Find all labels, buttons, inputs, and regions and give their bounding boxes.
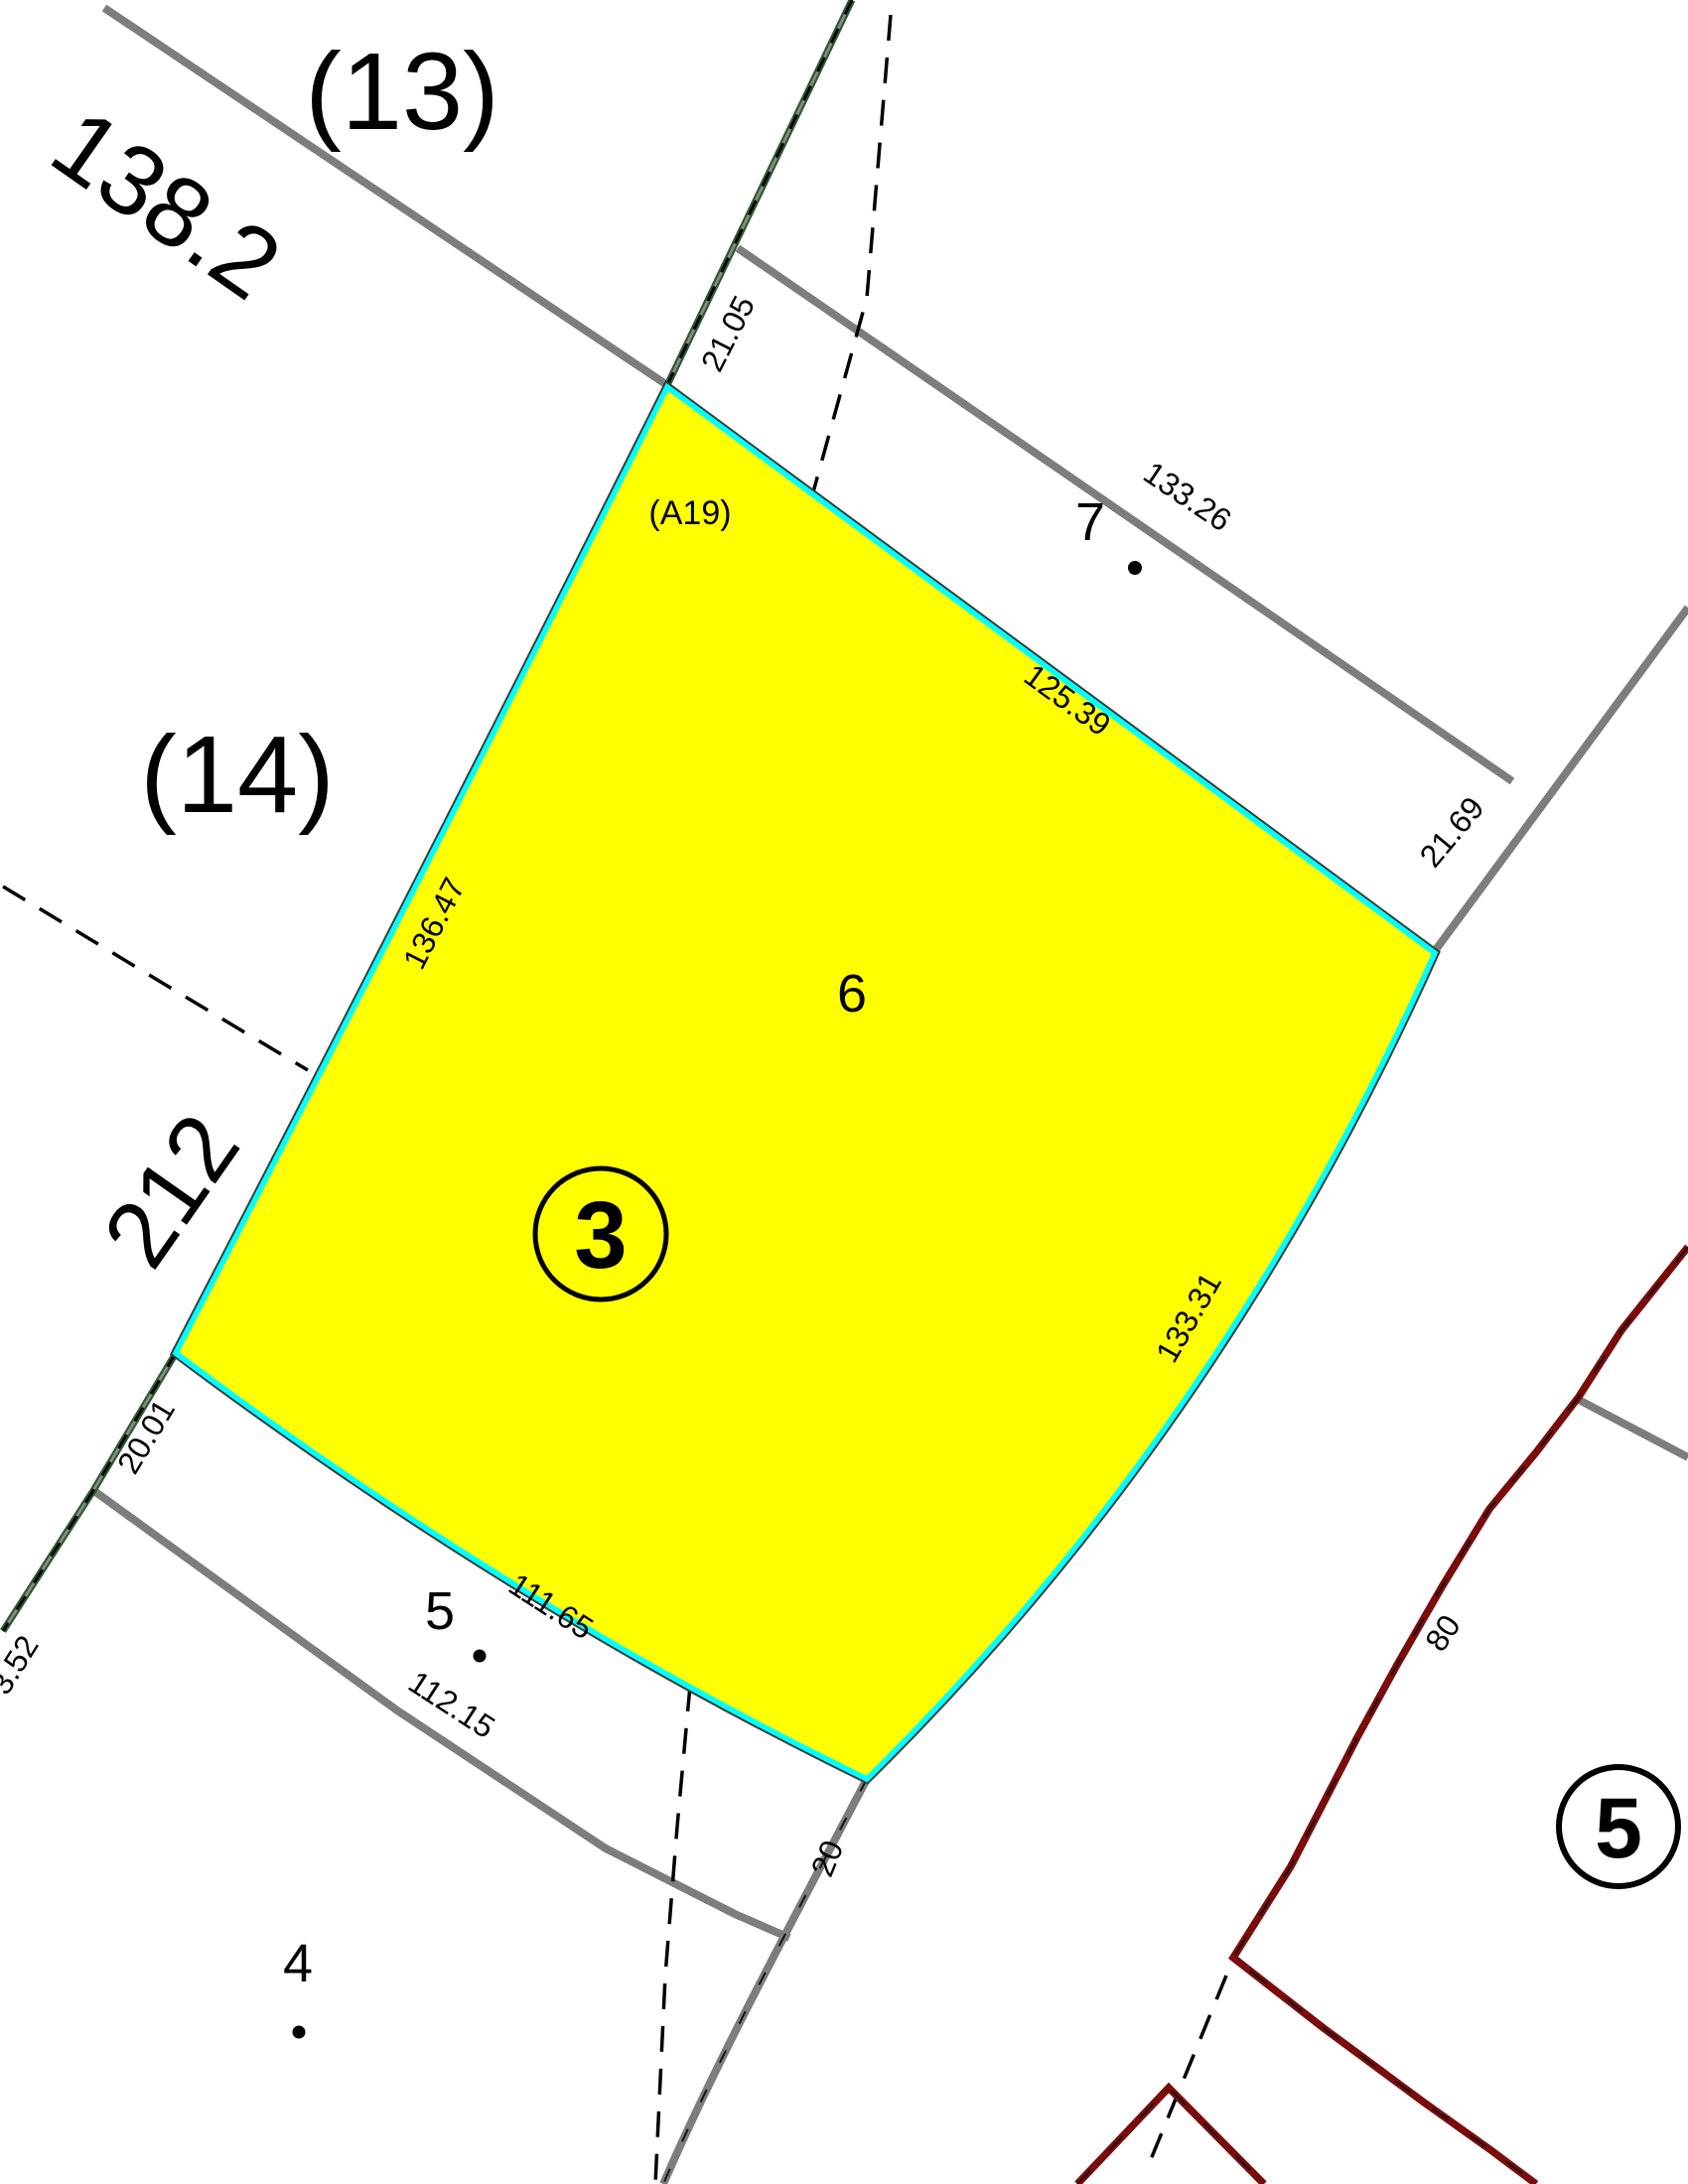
- dim-112-15-label: 112.15: [402, 1664, 501, 1745]
- road-138-2-label: 138.2: [33, 87, 300, 321]
- dashed-lot-line-southeast: [1147, 1976, 1226, 2169]
- width-3-52-label: 3.52: [0, 1629, 46, 1701]
- annotation-5-label: 5: [1595, 1781, 1642, 1876]
- maroon-boundary-secondary: [1077, 2088, 1264, 2184]
- width-20-label: 20: [804, 1836, 851, 1881]
- width-20-01-label: 20.01: [110, 1393, 182, 1479]
- lot-7-label: 7: [1075, 492, 1105, 552]
- dashed-lot-line-north: [811, 15, 891, 499]
- lot-7-point: [1128, 561, 1142, 575]
- annotation-3-label: 3: [574, 1182, 627, 1289]
- locality-14-label: (14): [140, 714, 335, 836]
- green-boundary-north: [667, 0, 852, 385]
- dashed-lot-line-south: [655, 1686, 690, 2184]
- lot-4-point: [293, 2026, 306, 2039]
- maroon-boundary-main: [1233, 1247, 1688, 2184]
- locality-13-label: (13): [305, 31, 499, 153]
- dashed-lot-line-west: [3, 887, 308, 1070]
- lot-5-label: 5: [425, 1581, 455, 1641]
- width-21-69-label: 21.69: [1412, 790, 1490, 874]
- road-branch-east: [1577, 1399, 1688, 1457]
- parcel-code-a19-label: (A19): [648, 494, 731, 532]
- lot-5-point: [474, 1650, 487, 1663]
- dim-133-26-label: 133.26: [1137, 455, 1237, 539]
- parcel-6-label: 6: [837, 964, 867, 1024]
- lot-4-label: 4: [283, 1934, 313, 1993]
- cadastral-map: (13) (14) 138.2 212 21.05 133.26 125.39 …: [0, 0, 1688, 2184]
- map-canvas: (13) (14) 138.2 212 21.05 133.26 125.39 …: [0, 0, 1688, 2184]
